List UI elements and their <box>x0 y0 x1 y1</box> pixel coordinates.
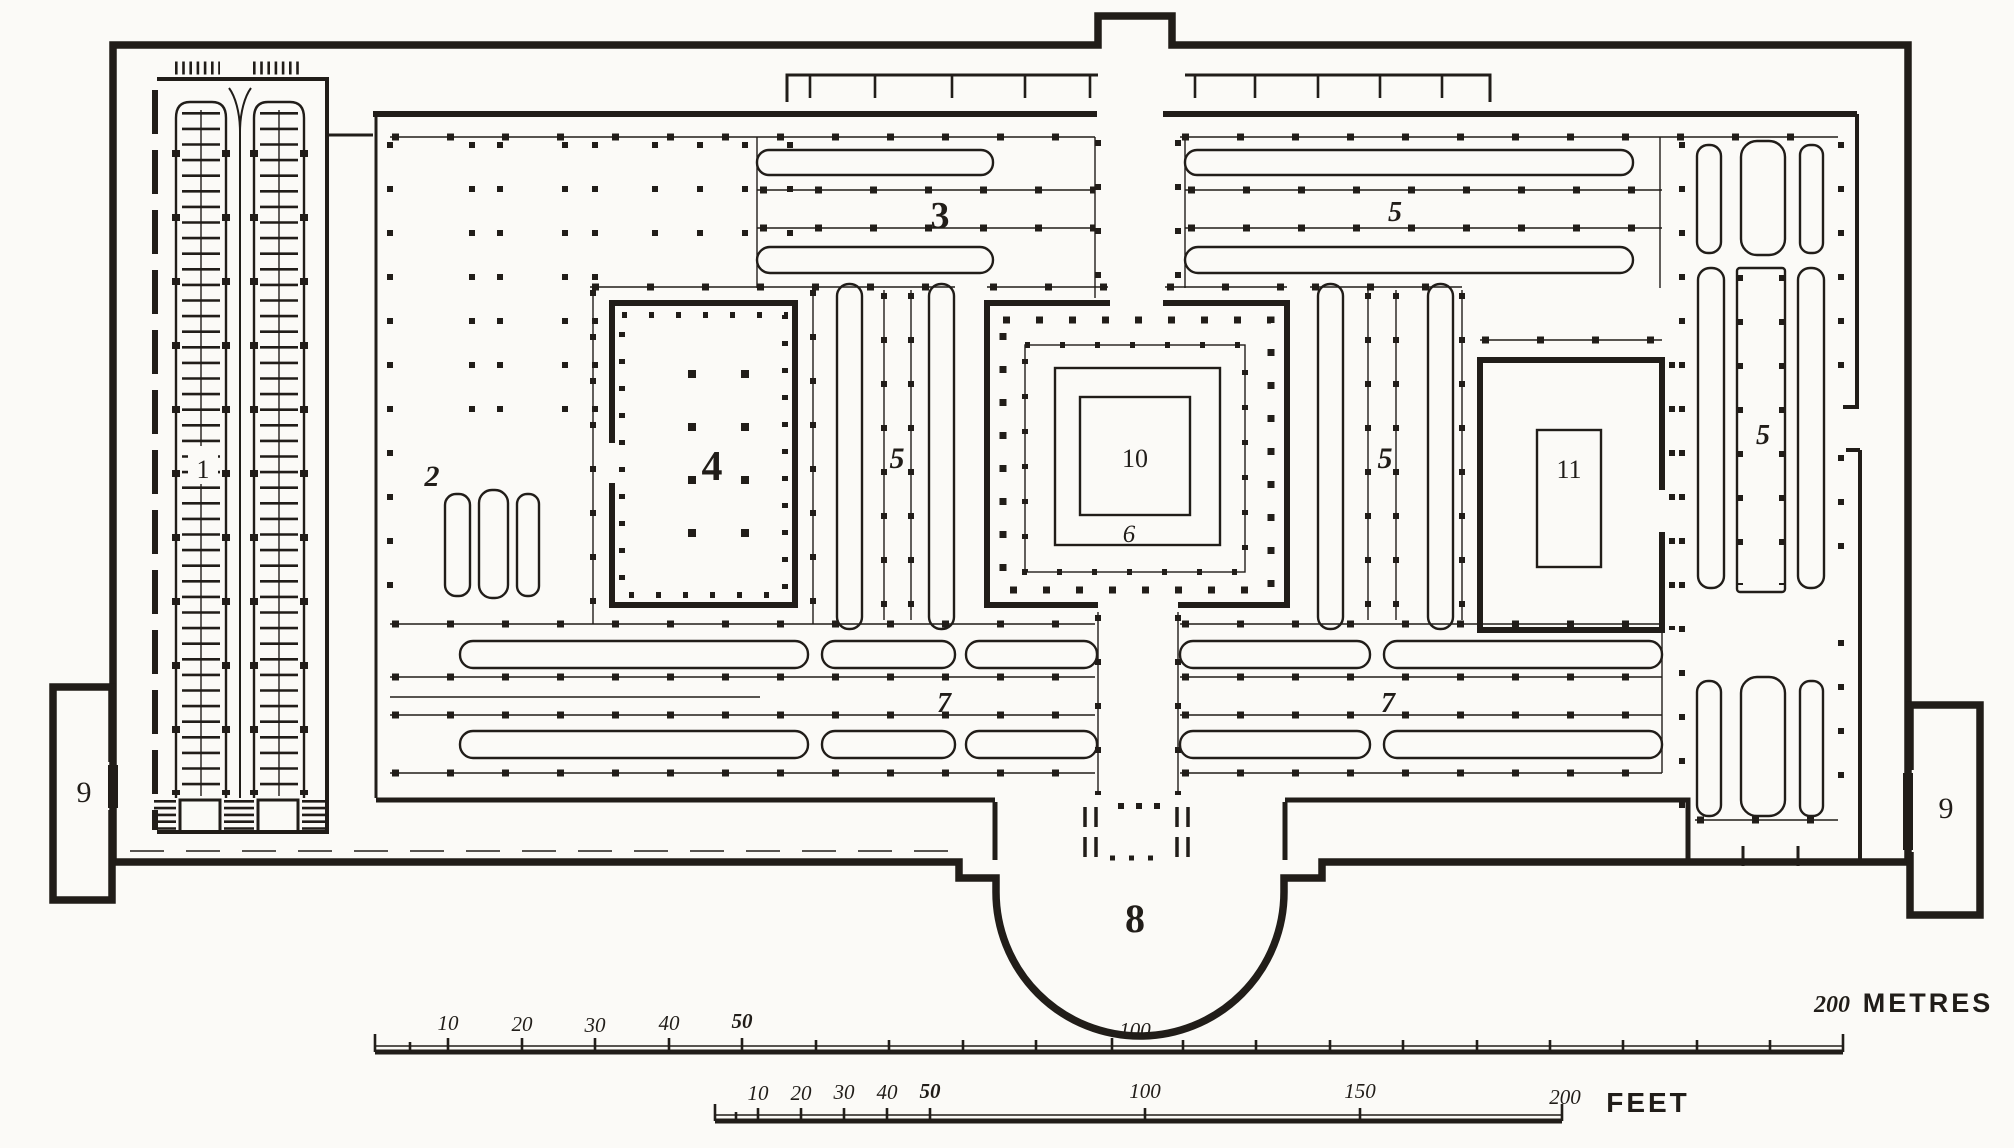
mat <box>966 641 1097 668</box>
entrance-porch-walls <box>995 802 1285 860</box>
area-label-7-west: 7 <box>937 688 952 719</box>
feet-tick-label-100: 100 <box>1129 1079 1161 1103</box>
shrine-enclosure-11 <box>1480 360 1662 630</box>
mosque-floor-plan-engraving: 1 2 3 4 5 5 5 5 6 7 7 8 9 9 10 11 10 20 … <box>0 0 2014 1148</box>
area-label-1: 1 <box>197 455 210 484</box>
mat <box>966 731 1097 758</box>
mat <box>822 731 955 758</box>
area-label-5-far-east: 5 <box>1756 420 1770 451</box>
mat-vertical <box>1798 268 1824 588</box>
mat <box>1185 247 1633 273</box>
area-label-6: 6 <box>1123 521 1136 548</box>
mat-vertical <box>479 490 508 598</box>
colonnade-dots <box>390 137 1841 820</box>
feet-unit-label: FEET <box>1606 1087 1690 1118</box>
base-block <box>180 800 220 832</box>
area-label-3: 3 <box>931 195 950 237</box>
feet-tick-label-20: 20 <box>791 1081 813 1105</box>
west-court-wall <box>327 114 376 798</box>
area-label-4: 4 <box>702 444 723 490</box>
mat <box>1384 641 1662 668</box>
area-label-5-east: 5 <box>1378 442 1393 475</box>
north-porch-wall <box>787 75 1490 102</box>
mat <box>1180 641 1370 668</box>
mat-vertical <box>1318 284 1343 629</box>
mat-vertical <box>1800 681 1823 816</box>
mat-vertical <box>1428 284 1453 629</box>
area-label-9-east: 9 <box>1939 792 1954 825</box>
mat-vertical <box>1741 141 1785 255</box>
mat-vertical <box>445 494 470 596</box>
base-block <box>258 800 298 832</box>
mat-vertical <box>1800 145 1823 253</box>
area-label-7-east: 7 <box>1381 688 1396 719</box>
enclosure-11-wall <box>1480 360 1662 630</box>
feet-tick-label-200: 200 <box>1549 1085 1581 1109</box>
metre-tick-label-40: 40 <box>659 1011 681 1035</box>
outer-walls <box>53 16 1980 1036</box>
engraved-floor-plan-page: 1 2 3 4 5 5 5 5 6 7 7 8 9 9 10 11 10 20 … <box>0 0 2014 1148</box>
metre-tick-label-10: 10 <box>438 1011 460 1035</box>
area-label-2: 2 <box>424 460 440 493</box>
mat-vertical <box>1697 681 1721 816</box>
minaret-ramp-compartment <box>155 68 327 832</box>
area-label-9-west: 9 <box>77 776 92 809</box>
colonnade-guide-lines <box>390 137 1838 820</box>
mat-vertical <box>1741 677 1785 816</box>
feet-ticks <box>715 1104 1562 1121</box>
metre-tick-label-30: 30 <box>584 1013 607 1037</box>
porch-column-pairs <box>1085 807 1188 857</box>
feet-tick-label-50: 50 <box>920 1079 942 1103</box>
metres-unit-label: METRES <box>1863 988 1994 1018</box>
mat <box>460 641 808 668</box>
mat <box>460 731 808 758</box>
mat <box>757 247 993 273</box>
sanctuary-east-wall <box>1843 114 1860 860</box>
area-label-10: 10 <box>1122 444 1148 473</box>
outer-enclosure-wall <box>113 16 1908 1036</box>
mat <box>757 150 993 175</box>
metre-tick-label-50: 50 <box>732 1009 754 1033</box>
metre-tick-label-100: 100 <box>1119 1018 1151 1042</box>
feet-tick-label-150: 150 <box>1344 1079 1376 1103</box>
sanctuary-south-wall <box>376 800 1688 862</box>
feet-tick-label-40: 40 <box>877 1080 899 1104</box>
north-porch-buttresses <box>810 76 1442 98</box>
center-channel-line <box>229 88 251 798</box>
metre-tick-label-200: 200 <box>1813 992 1850 1018</box>
mat-vertical <box>929 284 954 629</box>
scale-bar-feet: 10 20 30 40 50 100 150 200 FEET <box>715 1079 1690 1121</box>
area-label-11: 11 <box>1556 455 1581 484</box>
metre-tick-label-20: 20 <box>512 1012 534 1036</box>
mat-vertical <box>837 284 862 629</box>
area-label-8: 8 <box>1125 896 1145 941</box>
area-label-5-north: 5 <box>1388 197 1402 228</box>
mat-vertical <box>1697 145 1721 253</box>
mat <box>1185 150 1633 175</box>
mat-vertical <box>1698 268 1724 588</box>
plan-number-labels: 1 2 3 4 5 5 5 5 6 7 7 8 9 9 10 11 <box>77 195 1954 941</box>
mat <box>1180 731 1370 758</box>
area-label-5-west: 5 <box>890 442 905 475</box>
entrance-porch-8 <box>1085 806 1188 858</box>
scale-bar-metres: 10 20 30 40 50 100 200 METRES <box>375 988 1993 1052</box>
mat <box>1384 731 1662 758</box>
feet-tick-label-10: 10 <box>748 1081 770 1105</box>
enclosure-11-inner-rect <box>1537 430 1601 567</box>
mat <box>822 641 955 668</box>
mat-vertical <box>517 494 539 596</box>
feet-tick-label-30: 30 <box>833 1080 856 1104</box>
